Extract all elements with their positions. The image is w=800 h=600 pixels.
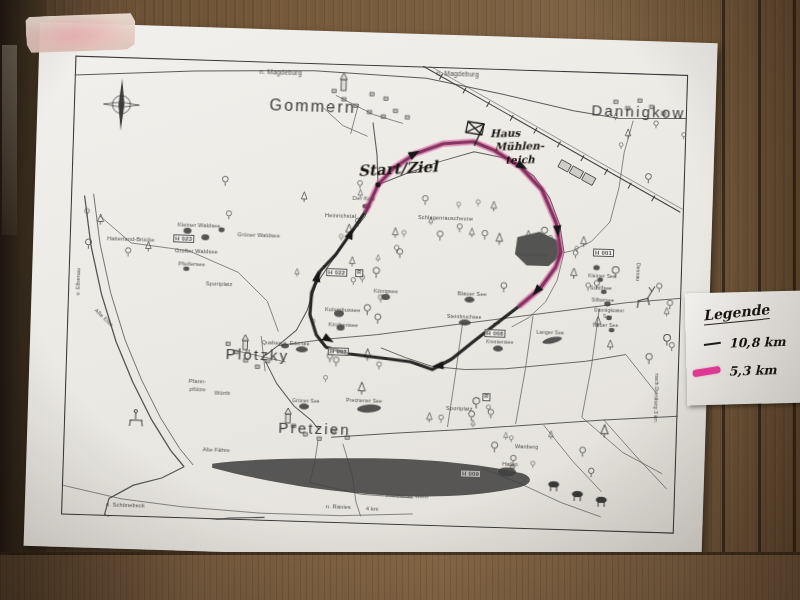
map-label: Kolumbussee — [325, 307, 361, 314]
map-label: H 023 — [173, 234, 194, 243]
map-label: Wörth — [214, 391, 230, 397]
map-label: R — [482, 393, 490, 401]
map-area: GommernDannigkowPlötzkyPretzienn. Magdeb… — [61, 55, 689, 534]
map-label: Sportplatz — [446, 406, 473, 412]
map-label: H 008 — [484, 329, 505, 338]
map-label: Kleiner Waldsee — [178, 222, 221, 229]
map-label: H 009 — [460, 469, 481, 478]
map-label: Dannigkow — [591, 102, 685, 120]
haus-muehlenteich-annotation-line2: Mühlen- — [494, 140, 544, 152]
map-label: Blauer See — [458, 291, 487, 297]
legend-card: Legende 10,8 km 5,3 km — [685, 290, 800, 405]
pink-route-swatch — [692, 366, 721, 378]
map-label: Schilfsee — [590, 285, 612, 291]
map-sheet: GommernDannigkowPlötzkyPretzienn. Magdeb… — [24, 22, 718, 567]
map-label: nach Dornburg 3 km — [653, 373, 660, 422]
map-label: Königsee — [374, 289, 399, 295]
map-label: Gommern — [269, 97, 356, 116]
map-label: Alte Fähre — [203, 447, 231, 453]
bottom-plank-grain — [0, 552, 800, 600]
map-label: See — [603, 315, 612, 320]
map-label: Kleiner See — [588, 273, 616, 279]
map-label: Kressensee — [486, 340, 513, 346]
legend-title: Legende — [702, 301, 770, 325]
map-label: Pfann- — [189, 379, 207, 385]
map-label: Silbersee — [591, 297, 614, 303]
map-label: Der Kulk — [353, 196, 376, 202]
legend-item-label: 5,3 km — [728, 362, 776, 378]
haus-muehlenteich-annotation-line1: Haus — [490, 128, 520, 139]
map-label: Dessau — [635, 263, 641, 281]
black-route-swatch — [704, 341, 721, 345]
plank-highlight — [2, 45, 17, 235]
map-label: Großer Waldsee — [175, 248, 218, 255]
map-label: Plattensee — [517, 251, 548, 258]
map-label: Pretzien — [278, 420, 351, 437]
map-label: Grüner Waldsee — [237, 232, 280, 239]
map-label: Kirchensee — [329, 322, 359, 328]
map-label: n. Schönebeck — [106, 502, 145, 509]
map-label: n. Magdeburg — [259, 69, 302, 77]
masking-tape — [25, 11, 137, 55]
tape-blush — [25, 11, 137, 55]
map-label: H 001 — [593, 248, 614, 257]
map-label: Wanberg — [515, 444, 539, 450]
map-label: Haberland-Brücke — [107, 236, 155, 243]
map-label: Alte Elbe — [93, 308, 114, 328]
start-ziel-annotation: Start/Ziel — [358, 160, 438, 179]
map-label: Grüner See — [292, 398, 320, 404]
map-label: Pretziener Wehr — [386, 493, 429, 500]
legend-item: 5,3 km — [704, 361, 800, 379]
map-label: Pretziener See — [346, 398, 382, 404]
map-label: H 022 — [326, 268, 347, 277]
legend-item-label: 10,8 km — [729, 334, 786, 350]
legend-item: 10,8 km — [704, 333, 800, 351]
map-label: Pfeifersee — [178, 261, 205, 267]
map-labels-layer: GommernDannigkowPlötzkyPretzienn. Magdeb… — [61, 55, 689, 534]
map-label: pfütze — [189, 387, 205, 393]
map-label: H 007 — [328, 347, 349, 356]
map-label: Schlagenrauscheune — [418, 215, 473, 222]
haus-muehlenteich-annotation-line3: teich — [505, 154, 535, 165]
map-label: n. Ranies — [326, 504, 351, 510]
map-label: Neuer See — [593, 323, 619, 329]
map-label: 4 km — [366, 506, 379, 512]
map-label: Steinbruchsee — [447, 314, 482, 320]
map-label: Hafen — [502, 462, 518, 468]
map-label: n. Magdeburg — [436, 70, 479, 78]
map-label: R — [355, 269, 363, 277]
map-label: v. Elbenau — [75, 268, 81, 296]
map-label: Heinrichstal — [325, 213, 356, 219]
map-label: Sportplatz — [206, 281, 233, 287]
map-label: Plötzky — [225, 346, 289, 363]
map-label: Langer See — [536, 330, 564, 336]
